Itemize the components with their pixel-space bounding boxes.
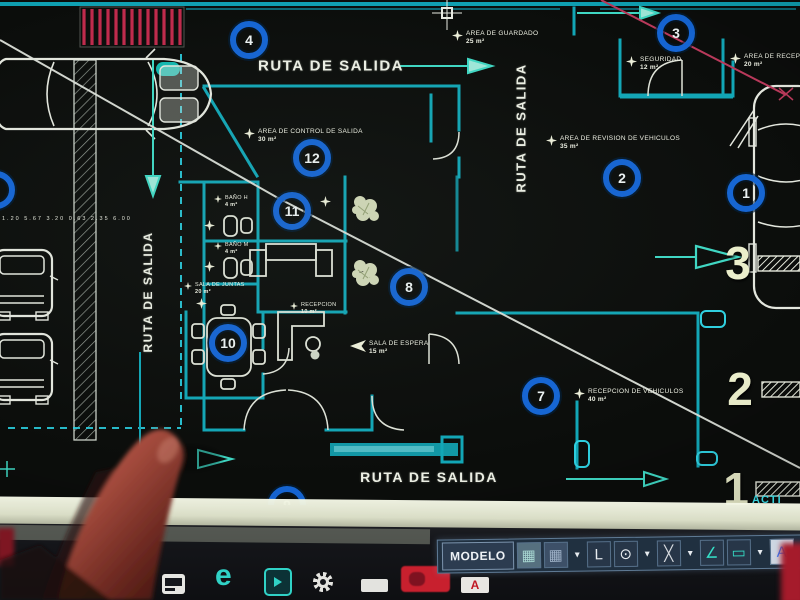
area-label: AREA DE REVISION DE VEHICULOS 35 m² [546,135,680,151]
area-label: SALA DE ESPERA 15 m² [350,340,428,356]
status-icon-glyph: ∠ [705,544,719,562]
grid-number-text: 3 [725,237,751,289]
area-size: 20 m² [195,289,245,296]
area-name: SALA DE ESPERA [369,340,428,348]
area-size: 15 m² [369,348,428,356]
area-size: 35 m² [560,143,680,151]
photo-of-screen: 4312112181079 RUTA DE SALIDARUTA DE SALI… [0,0,800,600]
film-slot [165,588,175,591]
area-label-text: SALA DE ESPERA 15 m² [369,340,428,356]
zone-circle: 11 [273,192,311,230]
zone-circle: 1 [727,174,765,212]
area-size: 10 m² [301,309,336,316]
diamond-marker-icon [204,220,215,231]
area-name: SALA DE JUNTAS [195,282,245,289]
area-size: 40 m² [588,396,683,404]
status-icon-glyph: ⊙ [619,545,632,563]
zone-circle [0,171,15,209]
photo-red-blob-right [781,543,800,600]
area-label: SALA DE JUNTAS 20 m² [184,282,245,295]
route-label-text: RUTA DE SALIDA [514,63,529,192]
area-name: BAÑO H [225,195,248,202]
zone-number: 2 [618,170,626,186]
diamond-marker-icon [320,196,331,207]
autocad-status-bar: MODELO ▦▦▾L⊙▾╳▾∠▭▾A [437,534,800,573]
grid-number: 3 [725,240,751,286]
status-icon-glyph: ▦ [548,546,562,564]
area-name: RECEPCION [301,302,336,309]
zone-circle: 4 [230,21,268,59]
status-bar-icon[interactable]: ▾ [640,541,653,567]
area-name: BAÑO M [225,242,249,249]
area-name: AREA DE REVISION DE VEHICULOS [560,135,680,143]
status-bar-icon[interactable]: ∠ [699,540,723,566]
status-icon-glyph: ▾ [688,548,693,559]
autocad-letter: A [471,579,480,591]
status-icon-glyph: L [594,546,603,563]
status-icon-glyph: ▾ [645,548,650,559]
status-bar-icon[interactable]: L [586,541,610,567]
zone-circle: 10 [209,324,247,362]
photo-red-blob-left [0,528,14,566]
area-size: 20 m² [744,61,800,69]
diamond-marker-icon [290,302,298,310]
area-label [320,196,334,207]
area-size: 25 m² [466,38,538,46]
status-bar-icons: ▦▦▾L⊙▾╳▾∠▭▾A [516,538,793,570]
area-label-text: RECEPCION 10 m² [301,302,336,315]
grid-number-text: 1 [723,463,749,505]
zone-number: 12 [304,150,320,166]
settings-gear-icon[interactable] [313,572,333,592]
route-label-text: RUTA DE SALIDA [360,469,498,485]
area-size: 4 m² [225,202,248,209]
gear-hub [317,576,329,588]
area-label-text: SALA DE JUNTAS 20 m² [195,282,245,295]
status-bar-icon[interactable]: ▦ [543,542,567,568]
area-label-text: BAÑO M 4 m² [225,242,249,255]
zone-circle: 8 [390,268,428,306]
zone-number: 1 [742,185,750,201]
area-label-text: AREA DE CONTROL DE SALIDA 30 m² [258,128,363,144]
status-bar-icon[interactable]: ▾ [753,539,766,565]
status-bar-icon[interactable]: ⊙ [613,541,637,567]
youtube-glyph [409,572,425,586]
route-label: RUTA DE SALIDA [258,58,404,75]
status-icon-glyph: ▭ [731,543,745,561]
diamond-marker-icon [184,282,192,290]
status-bar-icon[interactable]: ▦ [517,542,541,568]
area-size: 30 m² [258,136,363,144]
route-label-text: RUTA DE SALIDA [141,232,155,353]
status-icon-glyph: ╳ [664,544,673,562]
area-label: AREA DE GUARDADO 25 m² [452,30,538,46]
status-bar-icon[interactable]: ▭ [726,539,750,565]
area-name: AREA DE CONTROL DE SALIDA [258,128,363,136]
area-label: BAÑO H 4 m² [214,195,248,208]
grid-number: 2 [727,366,753,412]
film-slot [165,578,182,586]
zone-number: 4 [245,32,253,48]
diamond-marker-icon [196,298,207,309]
route-label: RUTA DE SALIDA [360,469,498,485]
area-label-text: AREA DE RECEPCION 20 m² [744,53,800,69]
route-label: RUTA DE SALIDA [141,232,155,353]
dimension-text: 1.20 5.67 3.20 0.63 2.35 6.00 [2,216,132,222]
diamond-marker-icon [626,56,637,67]
zone-circle: 3 [657,14,695,52]
area-name: AREA DE RECEPCION [744,53,800,61]
cad-drawing-canvas[interactable]: 4312112181079 RUTA DE SALIDARUTA DE SALI… [0,0,800,505]
area-name: AREA DE GUARDADO [466,30,538,38]
area-label [204,220,218,231]
area-label: AREA DE RECEPCION 20 m² [730,53,800,69]
area-label: RECEPCION DE VEHICULOS 40 m² [574,388,683,404]
area-size: 12 m² [640,64,681,72]
status-icon-glyph: ▾ [575,549,580,560]
area-label-text: AREA DE REVISION DE VEHICULOS 35 m² [560,135,680,151]
zone-number: 8 [405,279,413,295]
movies-icon[interactable] [162,574,185,594]
zone-number: 10 [220,335,236,351]
route-label-text: RUTA DE SALIDA [258,58,404,75]
area-label [204,261,218,272]
status-icon-glyph: ▾ [758,547,763,558]
autocad-icon[interactable]: A [461,577,489,593]
area-label: RECEPCION 10 m² [290,302,336,315]
play-glyph [274,577,282,587]
diamond-marker-icon [214,195,222,203]
area-label [196,298,210,309]
zone-circle: 12 [293,139,331,177]
area-label-text: RECEPCION DE VEHICULOS 40 m² [588,388,683,404]
diamond-marker-icon [574,388,585,399]
status-icon-glyph: ▦ [521,546,535,564]
grid-number-text: 2 [727,363,753,415]
status-bar-icon[interactable]: ▾ [683,540,696,566]
area-label: SEGURIDAD 12 m² [626,56,681,72]
area-label-text: BAÑO H 4 m² [225,195,248,208]
area-name: RECEPCION DE VEHICULOS [588,388,683,396]
area-label-text: AREA DE GUARDADO 25 m² [466,30,538,46]
diamond-marker-icon [546,135,557,146]
diamond-marker-icon [452,30,463,41]
zone-number: 11 [285,203,300,219]
diamond-marker-icon [730,53,741,64]
zone-number: 7 [537,388,545,404]
area-name: SEGURIDAD [640,56,681,64]
files-icon[interactable] [361,579,388,592]
zone-circle: 2 [603,159,641,197]
diamond-marker-icon [204,261,215,272]
model-space-button[interactable]: MODELO [442,542,514,571]
area-label: BAÑO M 4 m² [214,242,249,255]
area-size: 4 m² [225,249,249,256]
diamond-marker-icon [214,242,222,250]
diamond-marker-icon [244,128,255,139]
zone-circle: 7 [522,377,560,415]
status-bar-icon[interactable]: ╳ [656,540,680,566]
route-label: RUTA DE SALIDA [514,63,529,192]
area-label: AREA DE CONTROL DE SALIDA 30 m² [244,128,363,144]
zone-number: 3 [672,25,680,41]
area-label-text: SEGURIDAD 12 m² [640,56,681,72]
status-bar-icon[interactable]: ▾ [570,542,583,568]
diamond-marker-icon [350,340,366,352]
grid-number: 1 [723,466,749,505]
premiere-icon[interactable] [264,568,292,596]
edge-icon[interactable]: e [215,560,232,592]
